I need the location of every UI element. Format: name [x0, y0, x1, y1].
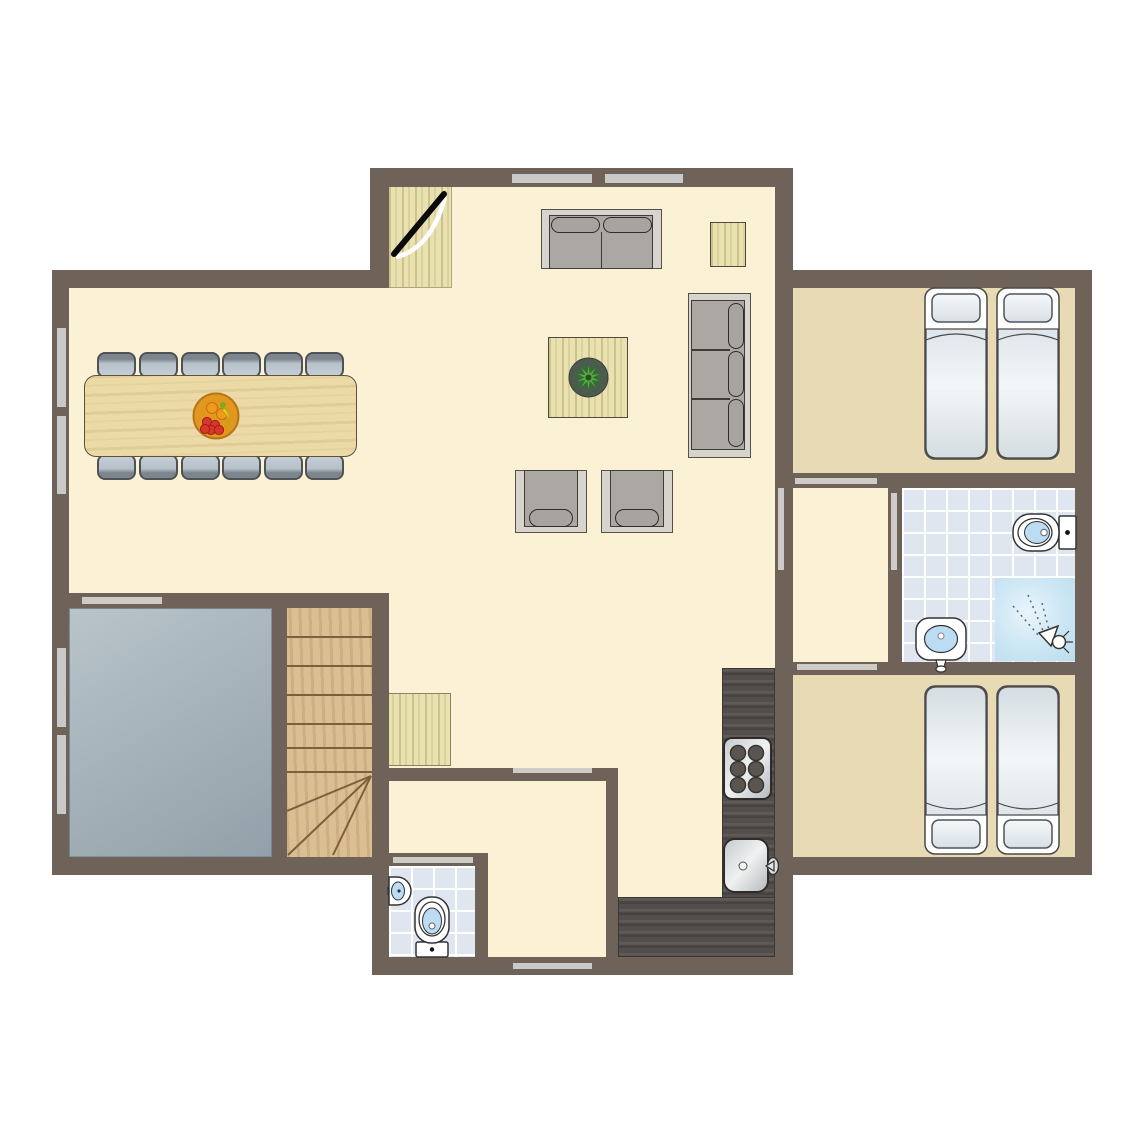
window	[605, 174, 683, 183]
window	[57, 735, 66, 814]
sofa-seat-divider	[601, 232, 603, 268]
storage-room-floor	[69, 608, 272, 857]
door-opening-storage	[82, 597, 162, 604]
wc-toilet	[413, 896, 451, 958]
bed	[997, 686, 1059, 854]
wall	[52, 857, 389, 875]
sofa-back-pillow	[603, 217, 652, 233]
sofa-back-pillow	[728, 303, 744, 349]
twin-beds-bedroom-2	[924, 685, 1061, 856]
door-opening-bedroom-1	[795, 478, 877, 484]
potted-plant	[566, 355, 611, 400]
wall	[475, 853, 488, 957]
entry-floor-panel	[389, 187, 452, 288]
shower-head-icon	[995, 578, 1075, 661]
sofa-back-pillow	[728, 351, 744, 397]
sofa-back-pillow	[551, 217, 600, 233]
door-opening-anteroom	[778, 488, 784, 570]
armchair-pillow	[529, 509, 573, 527]
door-opening-bathroom	[891, 493, 897, 570]
stove	[723, 737, 772, 800]
dining-chair	[222, 454, 261, 480]
stair-treads	[287, 608, 372, 857]
side-table	[710, 222, 746, 267]
window	[57, 416, 66, 494]
door-opening-wc	[393, 857, 473, 863]
window	[512, 174, 592, 183]
window	[513, 963, 592, 969]
anteroom-floor	[793, 488, 888, 662]
wall	[775, 857, 1092, 875]
shower	[995, 578, 1075, 661]
window	[57, 328, 66, 407]
wc-sink	[387, 875, 413, 907]
dining-chair	[97, 454, 136, 480]
wall	[372, 593, 389, 975]
bed	[925, 288, 987, 459]
kitchen-counter	[618, 897, 775, 957]
door-mat	[385, 693, 451, 766]
wall	[272, 593, 287, 875]
bathroom-sink	[915, 617, 969, 673]
door-opening-bedroom-2	[797, 664, 877, 670]
sofa-seat-divider	[692, 398, 730, 400]
bed	[997, 288, 1059, 459]
twin-beds-bedroom-1	[924, 287, 1061, 461]
entrance-door-swing-icon	[389, 187, 452, 287]
wall	[1075, 270, 1092, 875]
dining-chair	[305, 454, 344, 480]
door-opening-hall	[513, 768, 592, 773]
dining-chair	[264, 454, 303, 480]
sofa-seat-divider	[692, 349, 730, 351]
wall	[775, 270, 1092, 288]
armchair-pillow	[615, 509, 659, 527]
dining-chair	[139, 454, 178, 480]
fruit-bowl	[192, 392, 240, 440]
bathroom-toilet	[1012, 512, 1077, 553]
staircase	[287, 608, 372, 857]
window	[57, 648, 66, 727]
dining-chair	[181, 454, 220, 480]
sofa-back-pillow	[728, 399, 744, 447]
wall	[606, 768, 618, 957]
wall	[52, 270, 389, 288]
bed	[925, 686, 987, 854]
kitchen-sink	[723, 838, 779, 894]
floor-plan	[0, 0, 1145, 1145]
